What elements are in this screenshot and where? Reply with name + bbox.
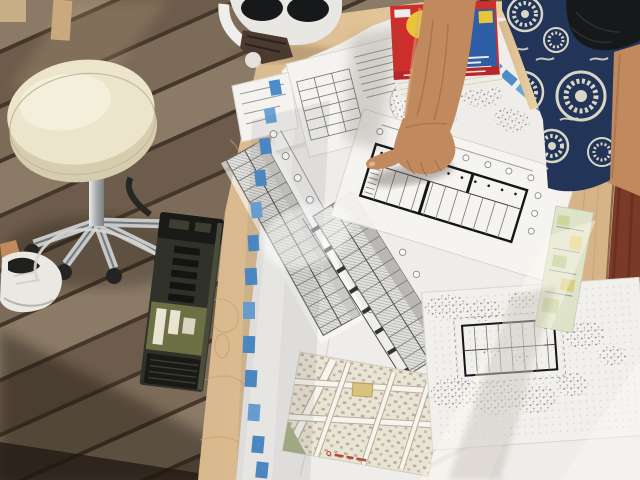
pointing-hand <box>394 118 456 174</box>
stool-column <box>89 176 104 226</box>
furniture-leg <box>51 0 73 41</box>
scene <box>0 0 640 480</box>
photo-canvas <box>0 0 640 480</box>
